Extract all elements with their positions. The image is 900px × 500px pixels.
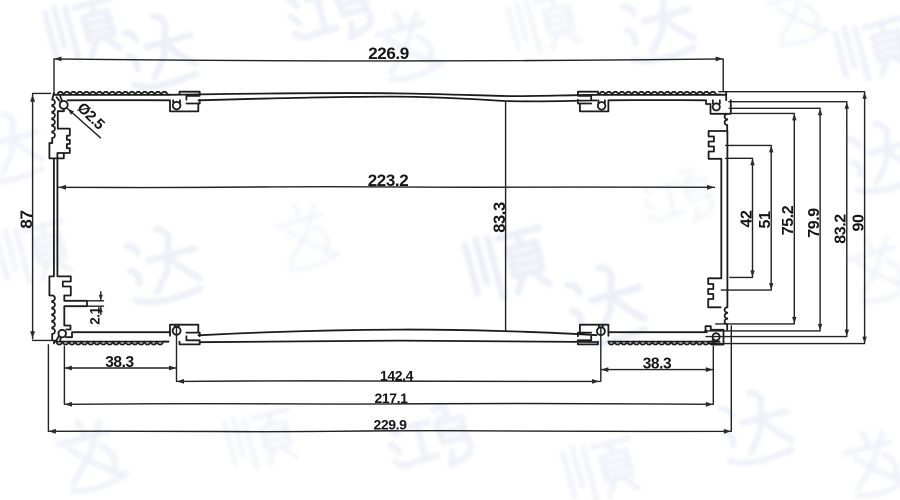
svg-text:142.4: 142.4 (380, 368, 414, 384)
svg-text:226.9: 226.9 (368, 44, 409, 63)
svg-text:83.3: 83.3 (491, 202, 509, 233)
svg-text:217.1: 217.1 (374, 390, 408, 406)
svg-text:83.2: 83.2 (833, 214, 850, 244)
svg-text:90: 90 (850, 214, 867, 231)
svg-text:38.3: 38.3 (643, 356, 672, 373)
svg-text:75.2: 75.2 (780, 205, 797, 235)
svg-text:51: 51 (757, 211, 774, 228)
svg-text:38.3: 38.3 (105, 354, 134, 371)
svg-text:42: 42 (738, 210, 755, 227)
svg-text:79.9: 79.9 (806, 208, 823, 238)
svg-text:223.2: 223.2 (368, 171, 409, 190)
svg-text:229.9: 229.9 (373, 416, 407, 432)
svg-text:87: 87 (17, 210, 36, 228)
svg-text:2.1: 2.1 (88, 306, 103, 324)
